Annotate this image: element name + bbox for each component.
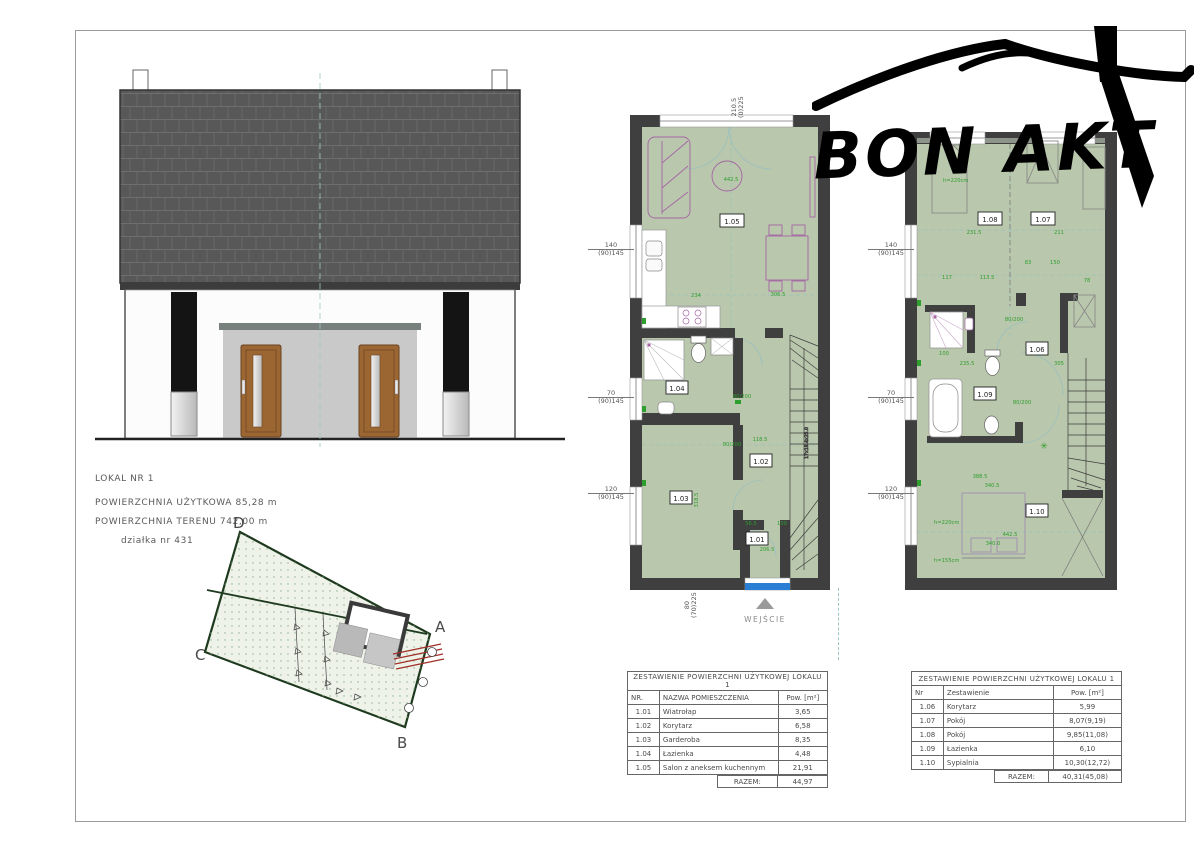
svg-text:56.5: 56.5	[745, 521, 757, 527]
svg-text:305: 305	[1054, 361, 1064, 367]
svg-text:388.5: 388.5	[973, 474, 988, 480]
svg-text:80/200: 80/200	[1005, 317, 1023, 323]
svg-text:113.5: 113.5	[980, 275, 995, 281]
window-panel-left	[171, 292, 197, 392]
table-row: 1.02Korytarz6,58	[628, 719, 828, 733]
svg-text:118.5: 118.5	[753, 437, 768, 443]
room-label-1-09: 1.09	[977, 391, 992, 399]
svg-text:100: 100	[939, 351, 949, 357]
lamp-symbol: ✳	[1040, 442, 1048, 452]
table1-total-row: RAZEM: 44,97	[627, 775, 828, 788]
room-label-1-06: 1.06	[1029, 346, 1044, 354]
svg-text:318.5: 318.5	[694, 493, 700, 508]
svg-text:206.5: 206.5	[760, 547, 775, 553]
uf-window-dim-3: 120(90)145	[868, 486, 914, 501]
svg-text:h=155cm: h=155cm	[934, 558, 959, 564]
corner-d: D	[233, 514, 245, 532]
site-plan: D A B C	[195, 512, 450, 762]
area-table-lokal-uf: ZESTAWIENIE POWIERZCHNI UŻYTKOWEJ LOKALU…	[911, 671, 1122, 783]
stove	[678, 307, 706, 327]
table-row: 1.10Sypialnia10,30(12,72)	[912, 756, 1122, 770]
table-row: 1.01Wiatrołap3,65	[628, 705, 828, 719]
table-row: 1.04Łazienka4,48	[628, 747, 828, 761]
corner-a: A	[435, 618, 446, 636]
room-label-1-01: 1.01	[749, 536, 764, 544]
table2-header-name: Zestawienie	[943, 686, 1053, 700]
bathtub	[929, 379, 962, 437]
table-row: 1.08Pokój9,85(11,08)	[912, 728, 1122, 742]
svg-text:340.0: 340.0	[986, 541, 1001, 547]
entry-door-left	[241, 345, 281, 437]
svg-text:78: 78	[1084, 278, 1091, 284]
entrance-label: WEJŚCIE	[733, 615, 797, 624]
svg-text:83: 83	[1025, 260, 1032, 266]
table2-total-value: 40,31(45,08)	[1049, 770, 1122, 783]
gf-entrance-sill	[745, 583, 790, 590]
logo-roof-icon	[816, 44, 1191, 106]
svg-text:h=220cm: h=220cm	[934, 520, 959, 526]
usable-area: POWIERZCHNIA UŻYTKOWA 85,28 m	[95, 498, 277, 508]
svg-text:340.5: 340.5	[985, 483, 1000, 489]
room-label-1-03: 1.03	[673, 495, 688, 503]
uf-toilet-1	[985, 350, 1000, 376]
table1-header-name: NAZWA POMIESZCZENIA	[659, 691, 778, 705]
table1-title: ZESTAWIENIE POWIERZCHNI UŻYTKOWEJ LOKALU…	[628, 672, 828, 691]
corner-b: B	[397, 734, 407, 752]
room-label-1-08: 1.08	[982, 216, 997, 224]
svg-text:306.5: 306.5	[771, 292, 786, 298]
table2-header-nr: Nr	[912, 686, 944, 700]
svg-text:150: 150	[1050, 260, 1060, 266]
svg-text:442.5: 442.5	[1003, 532, 1018, 538]
drawing-sheet: LOKAL NR 1 POWIERZCHNIA UŻYTKOWA 85,28 m…	[0, 0, 1200, 849]
table2-title: ZESTAWIENIE POWIERZCHNI UŻYTKOWEJ LOKALU…	[912, 672, 1122, 686]
table2-total-row: RAZEM: 40,31(45,08)	[911, 770, 1122, 783]
svg-text:80/200: 80/200	[1013, 400, 1031, 406]
table1-header-area: Pow. [m²]	[778, 691, 827, 705]
window-panel-right	[443, 292, 469, 392]
table-row: 1.09Łazienka6,10	[912, 742, 1122, 756]
table-row: 1.06Korytarz5,99	[912, 700, 1122, 714]
gf-window-dim-3: 120(90)145	[588, 486, 634, 501]
svg-text:17x18.4x25.0: 17x18.4x25.0	[804, 427, 810, 459]
table-row: 1.05Salon z aneksem kuchennym21,91	[628, 761, 828, 775]
area-table-lokal-gf: ZESTAWIENIE POWIERZCHNI UŻYTKOWEJ LOKALU…	[627, 671, 828, 788]
room-label-1-04: 1.04	[669, 385, 684, 393]
toilet	[691, 336, 706, 363]
uf-basin	[965, 318, 973, 330]
table2-total-label: RAZEM:	[994, 770, 1050, 783]
bon-akt-logo: BON AKT	[812, 20, 1194, 212]
window-glass-left	[171, 392, 197, 436]
table2-header-area: Pow. [m²]	[1053, 686, 1121, 700]
svg-text:117: 117	[942, 275, 952, 281]
window-glass-right	[443, 392, 469, 436]
svg-text:231.5: 231.5	[967, 230, 982, 236]
room-label-1-07: 1.07	[1035, 216, 1050, 224]
washbasin	[658, 402, 674, 414]
lokal-number: LOKAL NR 1	[95, 474, 277, 484]
svg-text:234: 234	[691, 293, 702, 299]
entry-door-right	[359, 345, 399, 437]
room-label-1-10: 1.10	[1029, 508, 1044, 516]
table-row: 1.07Pokój8,07(9,19)	[912, 714, 1122, 728]
svg-text:100: 100	[777, 521, 787, 527]
uf-window-dim-2: 70(90)145	[868, 390, 914, 405]
house-elevation	[95, 55, 565, 450]
gf-side-door-dim: 80(70)225	[684, 592, 698, 618]
svg-text:80/200: 80/200	[733, 394, 751, 400]
table1-total-label: RAZEM:	[717, 775, 779, 788]
svg-text:235.5: 235.5	[960, 361, 975, 367]
axis-dashed-line	[838, 588, 839, 660]
entrance-arrow-icon	[756, 598, 774, 609]
logo-text: BON AKT	[812, 109, 1159, 195]
gf-window-dim-1: 140(90)145	[588, 242, 634, 257]
ground-floor-plan: 17x18.4x25.0 1.05 1.04 1.02 1.03 1.01 44…	[626, 108, 834, 594]
table-row: 1.03Garderoba8,35	[628, 733, 828, 747]
svg-text:442.5: 442.5	[724, 177, 739, 183]
corner-c: C	[195, 646, 205, 664]
gf-top-dim: 210.5(0)225	[731, 96, 745, 118]
uf-toilet-2	[985, 416, 999, 434]
svg-text:211: 211	[1054, 230, 1064, 236]
kitchen-sink	[646, 241, 662, 256]
gf-window-dim-2: 70(90)145	[588, 390, 634, 405]
svg-text:80/200: 80/200	[723, 442, 741, 448]
room-label-1-05: 1.05	[724, 218, 739, 226]
room-label-1-02: 1.02	[753, 458, 768, 466]
table1-header-nr: NR.	[628, 691, 660, 705]
table1-total-value: 44,97	[778, 775, 828, 788]
uf-window-dim-1: 140(90)145	[868, 242, 914, 257]
entrance-marker: WEJŚCIE	[733, 598, 797, 624]
